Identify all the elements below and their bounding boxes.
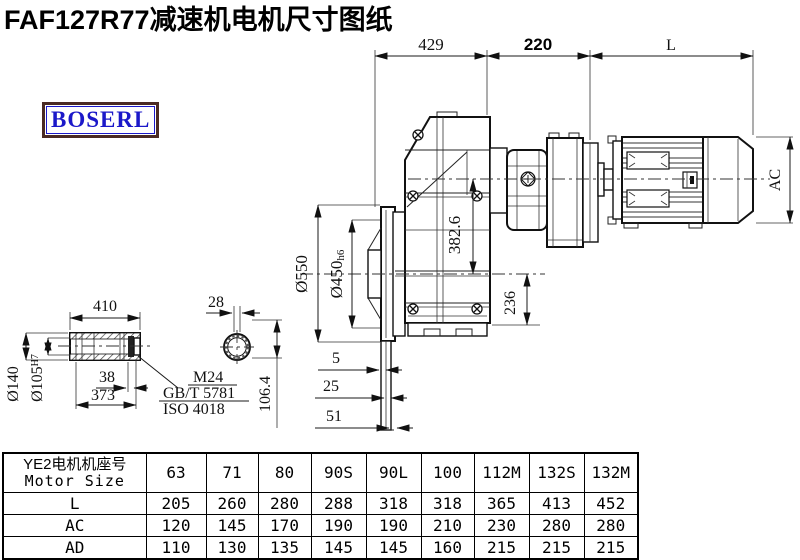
note-m24: M24: [193, 369, 223, 386]
gearbox-housing: [395, 112, 490, 336]
motor: [608, 136, 753, 228]
dim-5-label: 5: [332, 350, 340, 367]
table-row-AC: AC 120 145 170 190 190 210 230 280 280: [3, 515, 638, 537]
hollow-shaft-detail: [58, 333, 152, 360]
cell: 145: [311, 537, 366, 560]
dim-140-label: Ø140: [5, 366, 22, 402]
cell: 120: [146, 515, 206, 537]
flange-edge-view: [368, 207, 405, 430]
col-header: 132S: [529, 453, 584, 493]
cell: 110: [146, 537, 206, 560]
dim-236-label: 236: [502, 291, 519, 315]
cell: 145: [206, 515, 258, 537]
cell: 318: [421, 493, 474, 515]
col-header: 80: [258, 453, 311, 493]
cell: 215: [584, 537, 638, 560]
cell: 280: [584, 515, 638, 537]
header-en: Motor Size: [4, 473, 146, 490]
col-header: 63: [146, 453, 206, 493]
cell: 280: [258, 493, 311, 515]
cell: 230: [474, 515, 529, 537]
col-header: 90L: [366, 453, 421, 493]
shaft-section-view: [220, 330, 254, 364]
cell: 170: [258, 515, 311, 537]
col-header: 100: [421, 453, 474, 493]
cell: 288: [311, 493, 366, 515]
table-row-AD: AD 110 130 135 145 145 160 215 215 215: [3, 537, 638, 560]
cell: 145: [366, 537, 421, 560]
cell: 215: [474, 537, 529, 560]
cell: 215: [529, 537, 584, 560]
cell: 190: [366, 515, 421, 537]
dim-AC-label: AC: [767, 169, 784, 191]
cell: 160: [421, 537, 474, 560]
cell: 135: [258, 537, 311, 560]
cell: 130: [206, 537, 258, 560]
cell: 318: [366, 493, 421, 515]
dim-373-label: 373: [91, 387, 115, 404]
row-label: AC: [3, 515, 146, 537]
col-header: 112M: [474, 453, 529, 493]
dim-429-label: 429: [418, 35, 444, 54]
col-header: 71: [206, 453, 258, 493]
cell: 413: [529, 493, 584, 515]
cell: 205: [146, 493, 206, 515]
cell: 452: [584, 493, 638, 515]
header-cn: YE2电机机座号: [4, 457, 146, 474]
dim-450-label: Ø450h6: [327, 249, 347, 298]
cell: 365: [474, 493, 529, 515]
cell: 280: [529, 515, 584, 537]
dim-28-label: 28: [208, 294, 224, 311]
dim-25-label: 25: [323, 378, 339, 395]
cell: 210: [421, 515, 474, 537]
dim-51-label: 51: [326, 408, 342, 425]
col-header: 90S: [311, 453, 366, 493]
motor-size-table: YE2电机机座号 Motor Size 63 71 80 90S 90L 100…: [2, 452, 639, 560]
dim-220-label: 220: [524, 35, 552, 54]
table-header-row: YE2电机机座号 Motor Size 63 71 80 90S 90L 100…: [3, 453, 638, 493]
dim-382-label: 382.6: [445, 216, 464, 254]
cell: 190: [311, 515, 366, 537]
dim-105-label: Ø105H7: [29, 354, 46, 402]
dim-106-label: 106.4: [257, 376, 274, 412]
dim-550-label: Ø550: [292, 255, 311, 293]
input-stage-housing: [490, 133, 613, 247]
dim-38-label: 38: [99, 369, 115, 386]
note-gbt: GB/T 5781: [163, 385, 235, 402]
table-row-L: L 205 260 280 288 318 318 365 413 452: [3, 493, 638, 515]
row-label: AD: [3, 537, 146, 560]
col-header: 132M: [584, 453, 638, 493]
drawing-page: { "page": { "title": "FAF127R77减速机电机尺寸图纸…: [0, 0, 800, 557]
dim-410-label: 410: [93, 298, 117, 315]
row-label: L: [3, 493, 146, 515]
dim-L-label: L: [666, 37, 676, 54]
cell: 260: [206, 493, 258, 515]
note-iso: ISO 4018: [163, 401, 225, 418]
table-header-cell: YE2电机机座号 Motor Size: [3, 453, 146, 493]
